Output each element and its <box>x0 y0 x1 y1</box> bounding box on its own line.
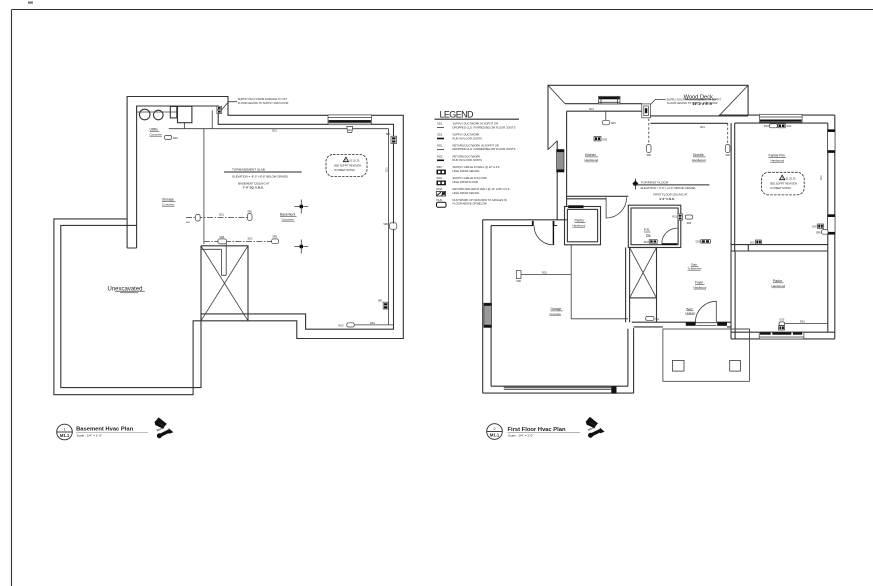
svg-text:HIGH FROM FLOOR: HIGH FROM FLOOR <box>453 180 478 184</box>
svg-text:Foyer: Foyer <box>695 280 704 284</box>
svg-text:Hardwood: Hardwood <box>585 158 599 162</box>
svg-text:RD1: RD1 <box>542 271 547 274</box>
svg-text:Concrete: Concrete <box>550 312 562 316</box>
svg-text:Scale : 1/4" = 1'-0": Scale : 1/4" = 1'-0" <box>77 434 102 438</box>
svg-text:SR0: SR0 <box>247 211 252 214</box>
svg-text:Hardwood: Hardwood <box>772 284 786 288</box>
svg-text:SUPPLY DUCTWORK IN SOFFIT OR: SUPPLY DUCTWORK IN SOFFIT OR <box>453 122 498 126</box>
svg-text:M1.1: M1.1 <box>60 433 70 438</box>
svg-text:RETURN GRILLES IN WALL @ 12" &: RETURN GRILLES IN WALL @ 12" & 80" A.F.F… <box>453 187 511 191</box>
svg-text:Storage: Storage <box>162 197 174 201</box>
svg-text:SD1: SD1 <box>700 126 705 129</box>
svg-text:7'-9" SQ. U.N.O.: 7'-9" SQ. U.N.O. <box>243 185 264 189</box>
svg-text:RG1: RG1 <box>672 216 678 219</box>
svg-text:Pantry: Pantry <box>575 219 585 223</box>
svg-text:FLOOR CEILING TO SUPPLY 2ND FL: FLOOR CEILING TO SUPPLY 2ND FLOOR <box>667 101 718 105</box>
svg-text:RD1: RD1 <box>370 322 376 325</box>
svg-text:Hardwood: Hardwood <box>692 158 706 162</box>
svg-text:TOP/BASEMENT SLAB: TOP/BASEMENT SLAB <box>232 167 265 171</box>
svg-text:9'-0" U.N.O.: 9'-0" U.N.O. <box>660 197 676 201</box>
svg-text:SD1: SD1 <box>385 167 388 172</box>
svg-text:Hardwood: Hardwood <box>573 224 586 228</box>
svg-text:DUCTWORK UP OR DOWN TO GRILLES: DUCTWORK UP OR DOWN TO GRILLES IN <box>453 198 507 202</box>
svg-text:RG#: RG# <box>437 187 443 191</box>
svg-text:SUPPLY GRILLE IN WALL @ 12" A.: SUPPLY GRILLE IN WALL @ 12" A.F.F. <box>453 165 501 169</box>
svg-text:SUPPLY DUCT FROM BASEMENT IN S: SUPPLY DUCT FROM BASEMENT IN SOFFIT <box>667 97 722 101</box>
svg-text:SR0: SR0 <box>173 137 178 140</box>
svg-text:RD1: RD1 <box>437 143 443 147</box>
svg-text:RD1: RD1 <box>800 321 805 324</box>
svg-text:SG0: SG0 <box>786 125 791 128</box>
svg-text:DROPPED CLG. FURRED BELOW FLOO: DROPPED CLG. FURRED BELOW FLOOR JOISTS <box>453 147 516 151</box>
svg-text:SD1: SD1 <box>437 122 443 126</box>
svg-text:SD1: SD1 <box>219 214 224 217</box>
svg-text:SR2: SR2 <box>725 154 730 157</box>
svg-text:RUN IN FLOOR JOISTS: RUN IN FLOOR JOISTS <box>453 136 483 140</box>
svg-text:Concrete: Concrete <box>162 203 175 207</box>
svg-text:HIGH FROM CEILING: HIGH FROM CEILING <box>453 169 480 173</box>
svg-text:SEE SOFFIT REVISION: SEE SOFFIT REVISION <box>770 183 797 186</box>
svg-text:Concrete: Concrete <box>150 133 163 137</box>
svg-text:Stair: Stair <box>691 263 697 267</box>
svg-text:2: 2 <box>493 427 495 431</box>
svg-text:FLOOR CEILING TO SUPPLY 2ND FL: FLOOR CEILING TO SUPPLY 2ND FLOOR <box>238 101 289 105</box>
svg-text:SD1: SD1 <box>820 175 823 180</box>
svg-text:SD2: SD2 <box>437 133 443 137</box>
svg-text:SD2: SD2 <box>248 238 253 241</box>
svg-text:SR0: SR0 <box>383 223 388 226</box>
svg-text:RG1: RG1 <box>764 125 770 128</box>
svg-text:IN SHEET NOTES: IN SHEET NOTES <box>770 187 791 190</box>
svg-text:!: ! <box>782 176 783 180</box>
svg-text:SUPPLY DUCTWORK: SUPPLY DUCTWORK <box>453 133 480 137</box>
svg-text:FLOOR ABOVE OR BELOW: FLOOR ABOVE OR BELOW <box>453 202 488 206</box>
svg-text:DROPPED CLG. FURRED BELOW FLOO: DROPPED CLG. FURRED BELOW FLOOR JOISTS <box>453 125 516 129</box>
svg-text:P.R.: P.R. <box>644 228 650 232</box>
svg-text:LEGEND: LEGEND <box>440 109 475 119</box>
svg-text:SR1: SR1 <box>378 299 383 302</box>
svg-text:RUN IN FLOOR JOISTS: RUN IN FLOOR JOISTS <box>453 158 483 162</box>
svg-text:SR0: SR0 <box>272 235 277 238</box>
svg-text:SR0: SR0 <box>646 154 651 157</box>
svg-text:RD2: RD2 <box>437 154 443 158</box>
svg-text:SR0: SR0 <box>816 231 821 234</box>
svg-text:Garage: Garage <box>551 307 562 311</box>
svg-text:SD1: SD1 <box>272 130 277 133</box>
svg-text:Tile: Tile <box>646 233 651 237</box>
svg-text:SR0: SR0 <box>219 236 224 239</box>
svg-text:Hardwood: Hardwood <box>771 159 785 163</box>
svg-text:RG0: RG0 <box>644 241 650 244</box>
svg-text:Family Rm: Family Rm <box>769 153 785 157</box>
svg-text:!: ! <box>345 158 346 162</box>
svg-text:RG0: RG0 <box>339 325 345 328</box>
svg-text:M1.1: M1.1 <box>490 433 500 438</box>
svg-text:DUC: DUC <box>437 198 443 202</box>
svg-text:Scale : 1/4" = 1'-0": Scale : 1/4" = 1'-0" <box>508 434 533 438</box>
svg-text:Bath: Bath <box>687 307 693 311</box>
svg-text:SR#: SR# <box>437 165 443 169</box>
svg-text:SG0: SG0 <box>779 319 784 322</box>
svg-text:First Floor Hvac Plan: First Floor Hvac Plan <box>508 427 566 433</box>
svg-text:01.20.20: 01.20.20 <box>350 159 360 162</box>
svg-text:RETURN DUCTWORK: RETURN DUCTWORK <box>453 154 481 158</box>
svg-text:SUPPLY GRILLE IN FLOOR.: SUPPLY GRILLE IN FLOOR. <box>453 176 488 180</box>
svg-text:SD1: SD1 <box>589 108 594 111</box>
svg-text:Dinette: Dinette <box>693 153 704 157</box>
svg-text:Kitchen: Kitchen <box>585 153 596 157</box>
svg-text:TOP/FIRST FLOOR: TOP/FIRST FLOOR <box>641 181 669 185</box>
svg-text:IN SHEET NOTES: IN SHEET NOTES <box>334 169 355 172</box>
svg-text:SG0: SG0 <box>602 138 607 141</box>
svg-text:01.20.20: 01.20.20 <box>786 177 796 180</box>
svg-text:SG0: SG0 <box>750 242 755 245</box>
svg-text:Hardwood: Hardwood <box>694 285 707 289</box>
svg-text:SR0: SR0 <box>611 122 616 125</box>
svg-text:HIGH FROM CEILING: HIGH FROM CEILING <box>453 191 480 195</box>
svg-text:Concrete: Concrete <box>282 217 295 221</box>
svg-text:1: 1 <box>63 428 65 432</box>
svg-text:SG0: SG0 <box>812 226 817 229</box>
svg-text:Utility: Utility <box>150 127 159 131</box>
svg-text:ELEVATION = 0'-0" (+4'-6" AB: ELEVATION = 0'-0" (+4'-6" ABOVE GRADE) <box>641 186 696 190</box>
svg-text:SR1: SR1 <box>386 133 391 136</box>
svg-text:Parlor: Parlor <box>773 279 783 283</box>
svg-text:SUPPLY DUCT FROM FURNACE TO 1S: SUPPLY DUCT FROM FURNACE TO 1ST <box>238 97 288 101</box>
svg-text:SR0: SR0 <box>687 222 692 225</box>
svg-text:SR0: SR0 <box>516 280 521 283</box>
svg-text:SEE SOFFIT REVISION: SEE SOFFIT REVISION <box>334 165 361 168</box>
svg-text:RETURN DUCTWORK IN SOFFIT OR: RETURN DUCTWORK IN SOFFIT OR <box>453 143 499 147</box>
svg-text:SG0: SG0 <box>695 241 700 244</box>
svg-text:RG: RG <box>656 318 660 321</box>
svg-text:ELEVATION = -8'-0" (-8'-8" B: ELEVATION = -8'-0" (-8'-8" BELOW GRADE) <box>232 175 288 179</box>
svg-text:SG#: SG# <box>437 176 443 180</box>
svg-text:Basement Hvac Plan: Basement Hvac Plan <box>76 427 133 433</box>
svg-text:Basement: Basement <box>280 213 295 217</box>
